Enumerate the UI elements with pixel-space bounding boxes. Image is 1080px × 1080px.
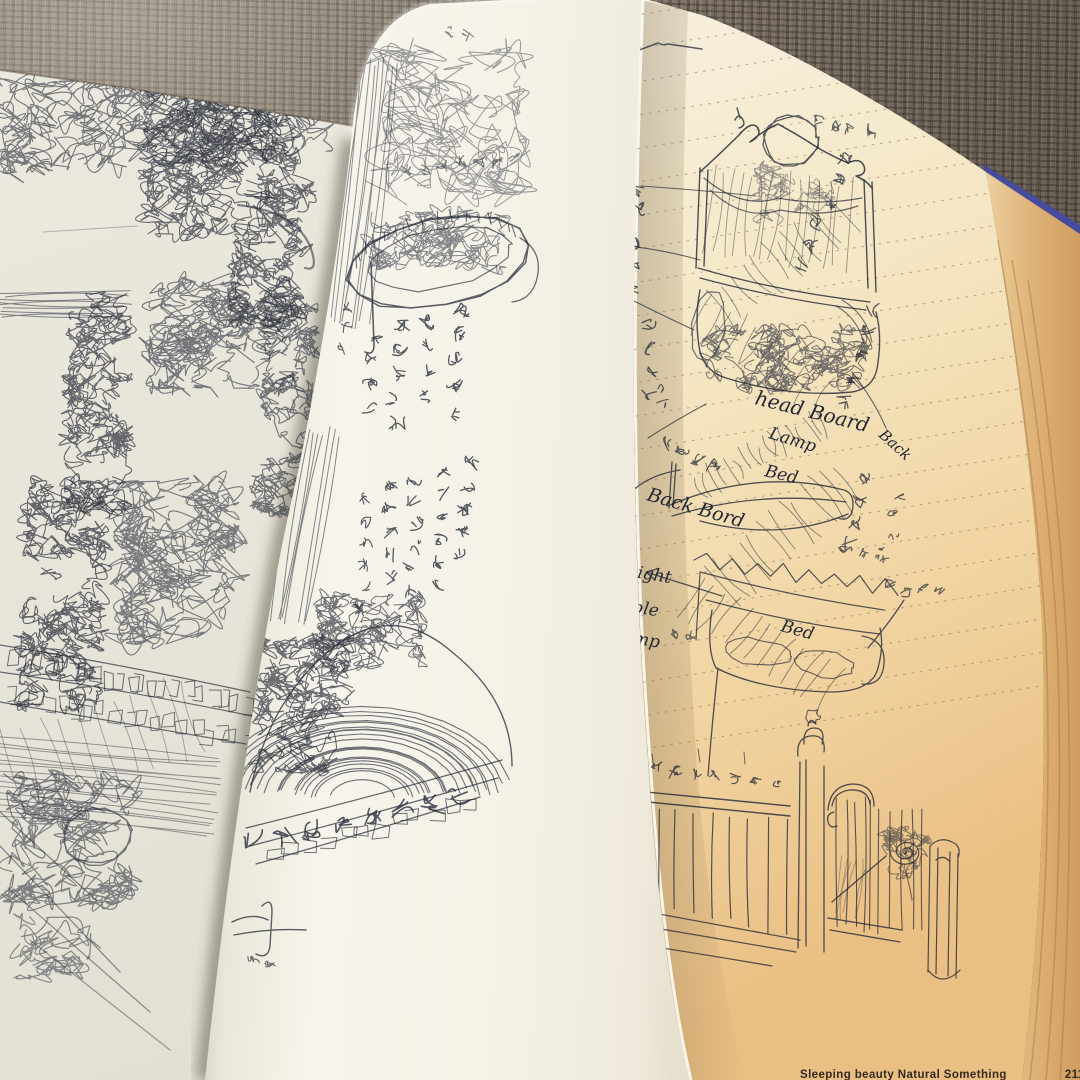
photo-open-sketchbook: head BoardBackLampBedBack BordnightTable… [0,0,1080,1080]
printed-caption: Sleeping beauty Natural Something211 [800,1069,1080,1080]
open-book: head BoardBackLampBedBack BordnightTable… [0,0,1080,1080]
caption-text: Sleeping beauty Natural Something [800,1069,1007,1080]
page-number: 211 [1065,1069,1080,1080]
